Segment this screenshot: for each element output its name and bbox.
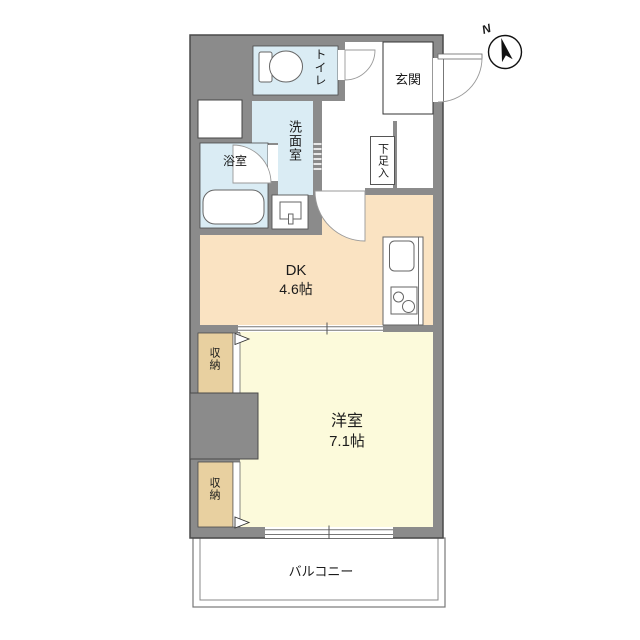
entrance-door-arc — [438, 58, 482, 102]
shoe-storage-floor — [397, 121, 433, 188]
kitchen-counter — [383, 237, 423, 325]
storage-lower-label: 収納 — [206, 477, 222, 513]
balcony-label: バルコニー — [251, 561, 391, 580]
floorplan-drawing — [0, 0, 640, 640]
balcony-window — [265, 526, 393, 540]
entrance-door-opening — [433, 58, 443, 102]
wall-block — [190, 393, 258, 459]
washroom-label: 洗面室 — [285, 120, 304, 170]
kitchen-sink — [390, 241, 415, 271]
storage-upper-label: 収納 — [206, 347, 222, 383]
bathroom-label: 浴室 — [210, 152, 260, 169]
pipe-space — [198, 100, 242, 138]
shoe-storage-label: 下足入 — [370, 136, 395, 185]
stove-burner-2 — [403, 301, 415, 313]
entrance-door-leaf — [438, 54, 482, 59]
north-compass-icon — [489, 36, 522, 69]
toilet-label: トイレ — [312, 48, 329, 92]
dk-size: 4.6帖 — [246, 280, 346, 298]
dk-label-group: DK 4.6帖 — [246, 262, 346, 298]
washbasin — [272, 195, 308, 229]
entrance-door — [438, 54, 482, 102]
toilet-door-opening — [338, 50, 345, 80]
floorplan-canvas: トイレ 玄関 下足入 洗面室 浴室 DK 4.6帖 収納 収納 洋室 7.1帖 … — [0, 0, 640, 640]
western-room-label-group: 洋室 7.1帖 — [297, 412, 397, 452]
entrance-label: 玄関 — [383, 69, 433, 88]
stove-burner-1 — [394, 292, 404, 302]
dk-label: DK — [246, 262, 346, 280]
bathtub — [203, 190, 264, 224]
western-room-label: 洋室 — [297, 412, 397, 432]
toilet-fixture — [259, 51, 303, 82]
western-room-size: 7.1帖 — [297, 432, 397, 452]
